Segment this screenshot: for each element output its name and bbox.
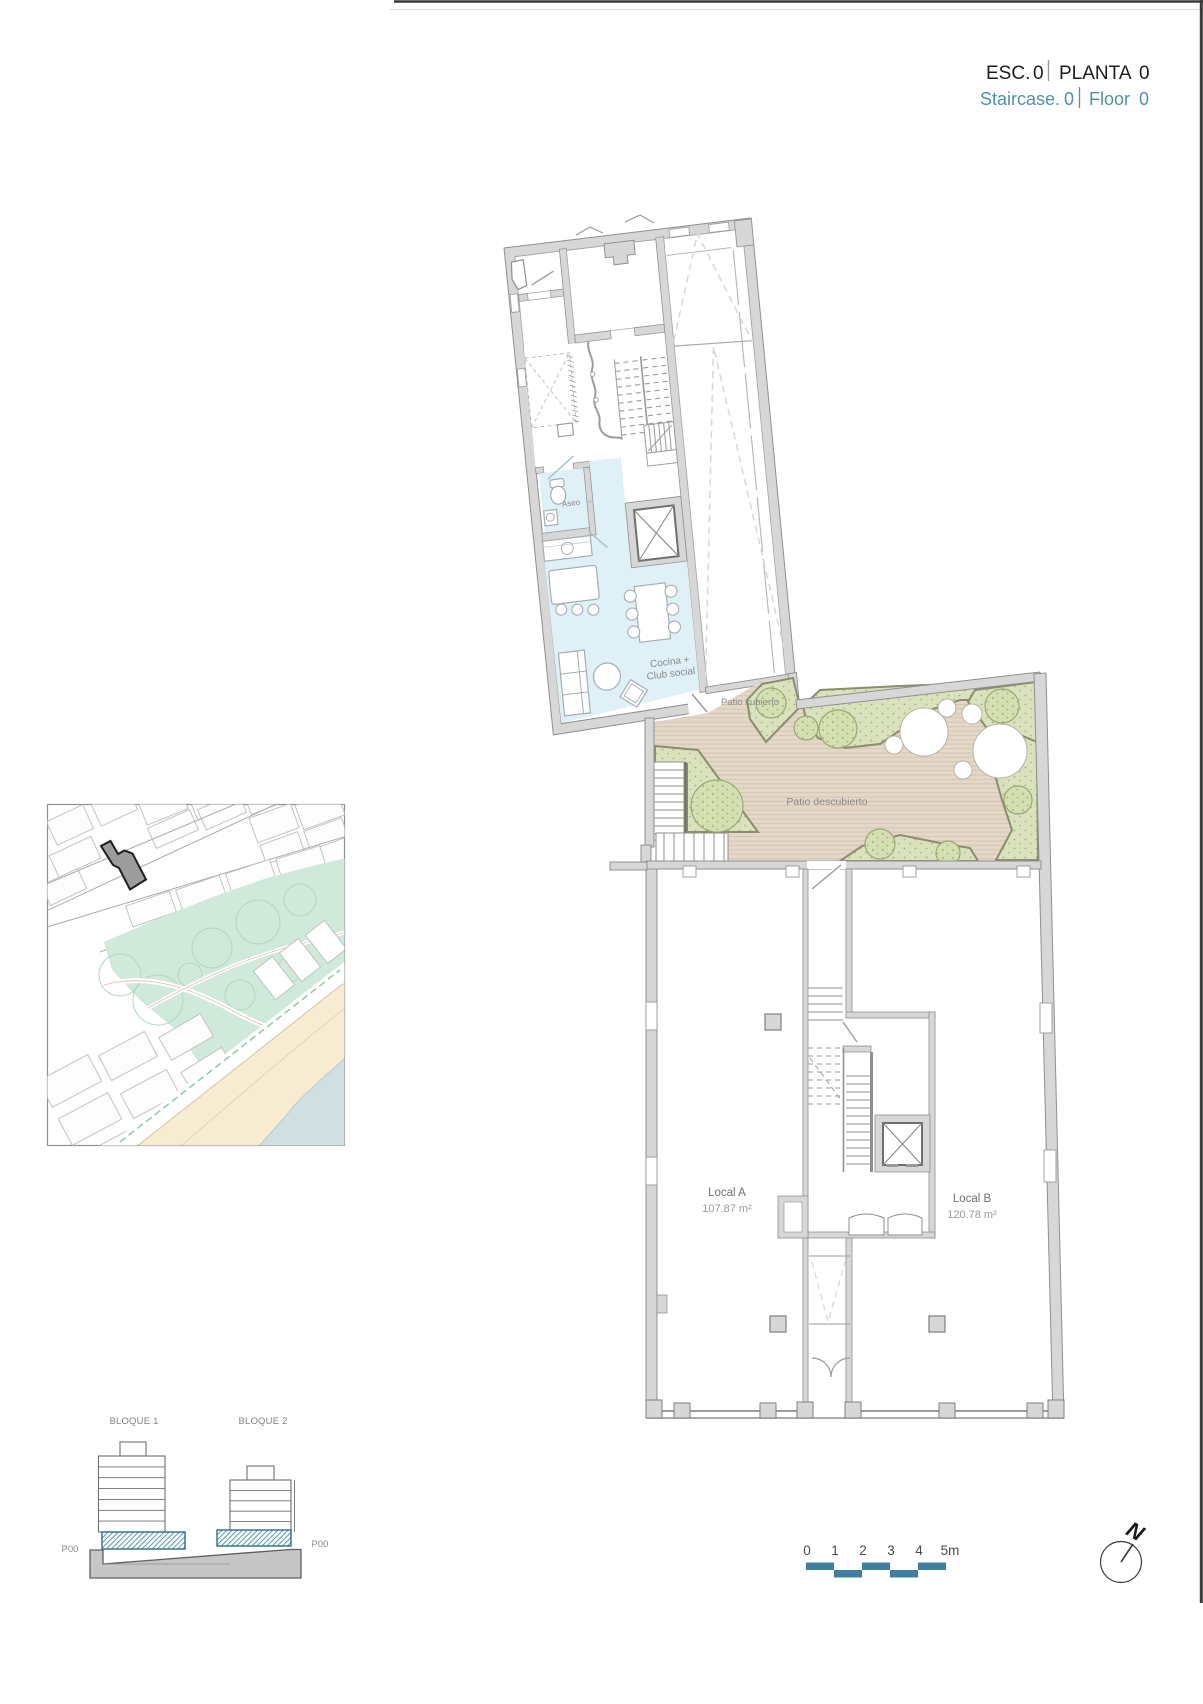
- svg-text:120.78 m²: 120.78 m²: [947, 1209, 997, 1221]
- svg-text:P00: P00: [312, 1539, 329, 1550]
- svg-text:0: 0: [1139, 63, 1150, 84]
- svg-text:Local B: Local B: [953, 1193, 992, 1205]
- svg-text:0: 0: [1139, 89, 1149, 109]
- svg-text:Staircase.: Staircase.: [980, 89, 1060, 109]
- svg-text:0: 0: [1064, 89, 1074, 109]
- svg-text:Floor: Floor: [1089, 89, 1130, 109]
- svg-text:107.87 m²: 107.87 m²: [702, 1203, 752, 1215]
- svg-text:Patio cubierto: Patio cubierto: [721, 697, 779, 708]
- svg-text:0: 0: [803, 1543, 811, 1558]
- svg-text:ESC.: ESC.: [986, 63, 1030, 84]
- svg-text:5m: 5m: [941, 1543, 960, 1558]
- svg-text:BLOQUE 2: BLOQUE 2: [238, 1416, 287, 1427]
- svg-text:Local A: Local A: [708, 1187, 746, 1199]
- svg-text:Patio descubierto: Patio descubierto: [786, 796, 867, 808]
- svg-text:2: 2: [859, 1543, 867, 1558]
- svg-text:3: 3: [887, 1543, 895, 1558]
- svg-text:4: 4: [915, 1543, 923, 1558]
- svg-text:0: 0: [1033, 63, 1044, 84]
- svg-text:1: 1: [831, 1543, 839, 1558]
- svg-text:P00: P00: [62, 1544, 79, 1555]
- svg-text:BLOQUE 1: BLOQUE 1: [109, 1416, 158, 1427]
- svg-text:PLANTA: PLANTA: [1059, 63, 1132, 84]
